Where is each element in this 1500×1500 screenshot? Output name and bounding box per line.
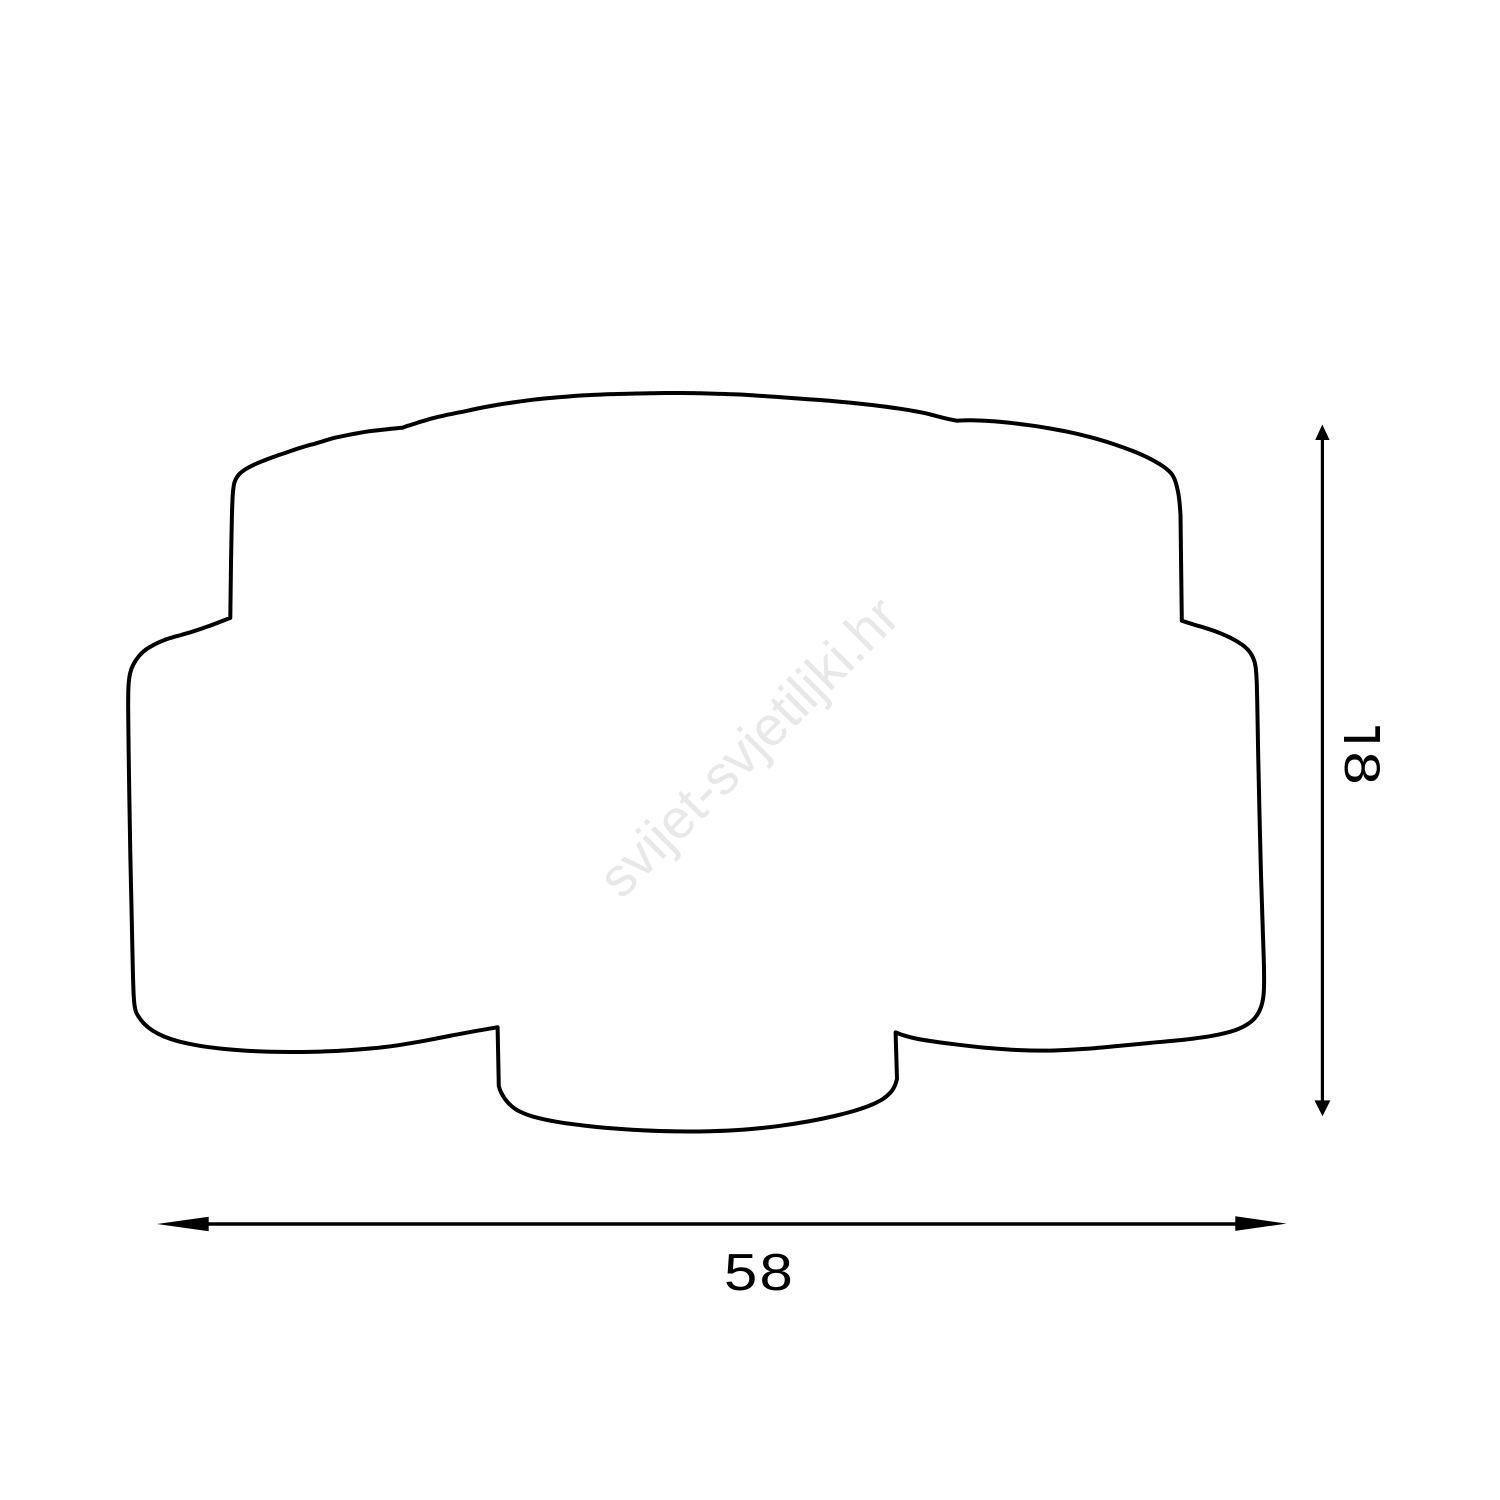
svg-text:svijet-svjetiljki.hr: svijet-svjetiljki.hr	[586, 584, 911, 909]
svg-text:58: 58	[724, 1243, 795, 1301]
svg-text:8: 8	[1334, 752, 1390, 785]
